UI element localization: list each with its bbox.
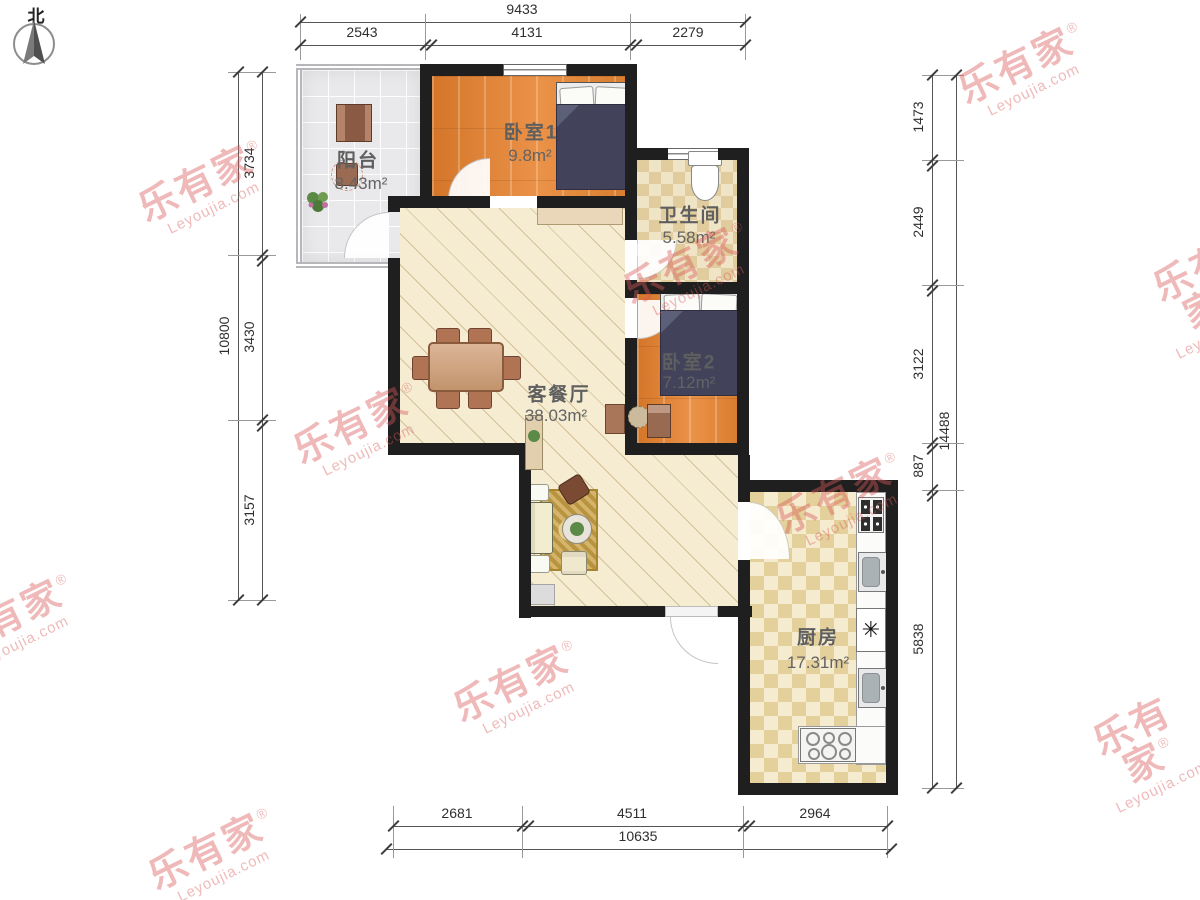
watermark-registered-mark: ® <box>53 570 69 589</box>
wall-segment <box>420 64 503 76</box>
wall-segment <box>537 196 637 208</box>
balcony-name: 阳台 <box>337 146 379 173</box>
watermark-domain: Leyoujia.com <box>971 54 1097 126</box>
dimension-label: 4511 <box>617 805 647 821</box>
watermark-registered-mark: ® <box>1064 18 1080 37</box>
duvet <box>556 104 632 190</box>
watermark-domain: Leyoujia.com <box>1114 758 1200 815</box>
kitchen-appliance-box: ✳ <box>856 608 886 652</box>
dining-table <box>428 342 504 392</box>
kitchen-area: 17.31m² <box>787 653 849 673</box>
floorplan-canvas: 北 <box>0 0 1200 900</box>
living-side-chair <box>529 484 549 501</box>
wall-segment <box>625 148 668 160</box>
wall-segment <box>519 606 665 617</box>
watermark-domain: Leyoujia.com <box>0 606 86 678</box>
watermark-registered-mark: ® <box>559 636 575 655</box>
living-top-cabinet <box>537 205 623 225</box>
entry-door-arc <box>670 617 718 664</box>
dimension-label: 2279 <box>672 24 703 40</box>
dimension-extension <box>393 806 394 858</box>
bedroom1-window <box>503 64 567 76</box>
wall-segment <box>737 148 749 455</box>
watermark-registered-mark: ® <box>1155 733 1171 752</box>
toilet-bowl <box>691 165 719 201</box>
watermark-domain: Leyoujia.com <box>161 840 287 900</box>
balcony-cabinet <box>336 104 372 142</box>
balcony-window-bottom <box>296 262 393 268</box>
dimension-line <box>386 849 891 850</box>
wall-segment <box>738 560 750 795</box>
hob-burners-icon <box>859 498 885 534</box>
brand-watermark: 乐有家®Leyoujia.com <box>448 636 592 744</box>
kitchen-hob <box>858 497 884 533</box>
plant-icon <box>304 188 332 216</box>
kitchen-sink-lower <box>858 668 887 708</box>
brand-watermark: 乐有家®Leyoujia.com <box>143 804 287 900</box>
living-side-chair <box>529 555 550 573</box>
brand-watermark: 乐有家®Leyoujia.com <box>1140 234 1200 362</box>
wall-segment <box>886 480 898 795</box>
range-burners-icon <box>801 729 857 763</box>
living-area: 38.03m² <box>525 406 587 426</box>
watermark-brand: 乐有家 <box>0 573 70 665</box>
dimension-label: 2681 <box>441 805 472 821</box>
bedroom2-desk <box>647 404 671 438</box>
watermark-brand: 乐有家 <box>142 807 271 899</box>
dimension-extension <box>630 14 631 60</box>
wall-segment <box>738 783 898 795</box>
watermark-domain: Leyoujia.com <box>151 172 277 244</box>
dimension-line <box>932 75 933 788</box>
dimension-label: 2449 <box>910 206 926 237</box>
dimension-label: 3157 <box>241 494 257 525</box>
watermark-brand: 乐有家 <box>1147 236 1200 337</box>
wall-segment <box>388 443 531 455</box>
wall-segment <box>738 480 898 492</box>
living-sofa <box>528 502 553 554</box>
bedroom1-bed <box>556 82 631 188</box>
dimension-label: 2964 <box>799 805 830 821</box>
watermark-registered-mark: ® <box>882 448 898 467</box>
dimension-extension <box>743 806 744 858</box>
dimension-label: 10800 <box>216 317 232 356</box>
kitchen-range <box>800 728 856 762</box>
living-name: 客餐厅 <box>527 380 590 407</box>
living-stool <box>561 551 587 575</box>
bathroom-name: 卫生间 <box>658 201 721 228</box>
dimension-label: 4131 <box>511 24 542 40</box>
dimension-label: 14488 <box>936 412 952 451</box>
balcony-window-top <box>296 64 426 70</box>
dimension-label: 887 <box>910 454 926 477</box>
watermark-brand: 乐有家 <box>952 21 1081 113</box>
balcony-plant <box>304 188 332 216</box>
dimension-extension <box>522 806 523 858</box>
watermark-brand: 乐有家 <box>447 639 576 731</box>
dimension-label: 10635 <box>619 828 658 844</box>
dimension-line <box>262 72 263 600</box>
dimension-label: 3122 <box>910 348 926 379</box>
brand-watermark: 乐有家®Leyoujia.com <box>953 18 1097 126</box>
living-sideboard <box>605 404 625 434</box>
wall-segment <box>625 443 749 455</box>
dimension-line <box>300 45 745 46</box>
balcony-window-left <box>296 64 302 268</box>
dining-chair <box>468 390 492 409</box>
watermark-domain: Leyoujia.com <box>466 672 592 744</box>
dimension-line <box>393 826 887 827</box>
wall-segment <box>388 258 400 455</box>
bedroom2-name: 卧室2 <box>662 348 717 375</box>
watermark-domain: Leyoujia.com <box>1174 304 1200 361</box>
dimension-line <box>300 22 745 23</box>
dimension-line <box>956 75 957 788</box>
kitchen-sink-upper <box>858 552 887 592</box>
wall-segment <box>625 64 637 208</box>
dining-chair <box>502 356 521 380</box>
tv-stand <box>527 584 555 605</box>
bedroom2-area: 7.12m² <box>663 373 716 393</box>
brand-watermark: 乐有家®Leyoujia.com <box>1080 688 1200 816</box>
bedroom1-area: 9.8m² <box>508 146 551 166</box>
compass-icon <box>8 18 64 68</box>
balcony-area: 8.43m² <box>335 174 388 194</box>
dimension-label: 9433 <box>506 1 537 17</box>
wall-segment <box>625 282 748 294</box>
watermark-brand: 乐有家 <box>1087 690 1179 791</box>
wall-segment <box>625 208 637 240</box>
north-compass: 北 <box>8 2 64 68</box>
toilet-tank <box>688 151 722 166</box>
dimension-label: 1473 <box>910 101 926 132</box>
dimension-line <box>238 72 239 600</box>
wall-segment <box>738 455 750 502</box>
dimension-label: 5838 <box>910 623 926 654</box>
dimension-label: 3430 <box>241 321 257 352</box>
bedroom1-name: 卧室1 <box>504 118 559 145</box>
dimension-label: 3734 <box>241 147 257 178</box>
wall-segment <box>420 64 432 208</box>
dimension-label: 2543 <box>346 24 377 40</box>
coffee-table-plant <box>570 522 584 536</box>
wall-segment <box>388 196 490 208</box>
watermark-registered-mark: ® <box>254 804 270 823</box>
dining-chair <box>436 390 460 409</box>
kitchen-name: 厨房 <box>797 623 839 650</box>
bathroom-area: 5.58m² <box>663 228 716 248</box>
wall-segment <box>388 196 400 212</box>
shelf-plant <box>528 430 540 442</box>
entry-door-leaf <box>665 606 718 617</box>
dimension-extension <box>425 14 426 60</box>
brand-watermark: 乐有家®Leyoujia.com <box>0 570 86 678</box>
